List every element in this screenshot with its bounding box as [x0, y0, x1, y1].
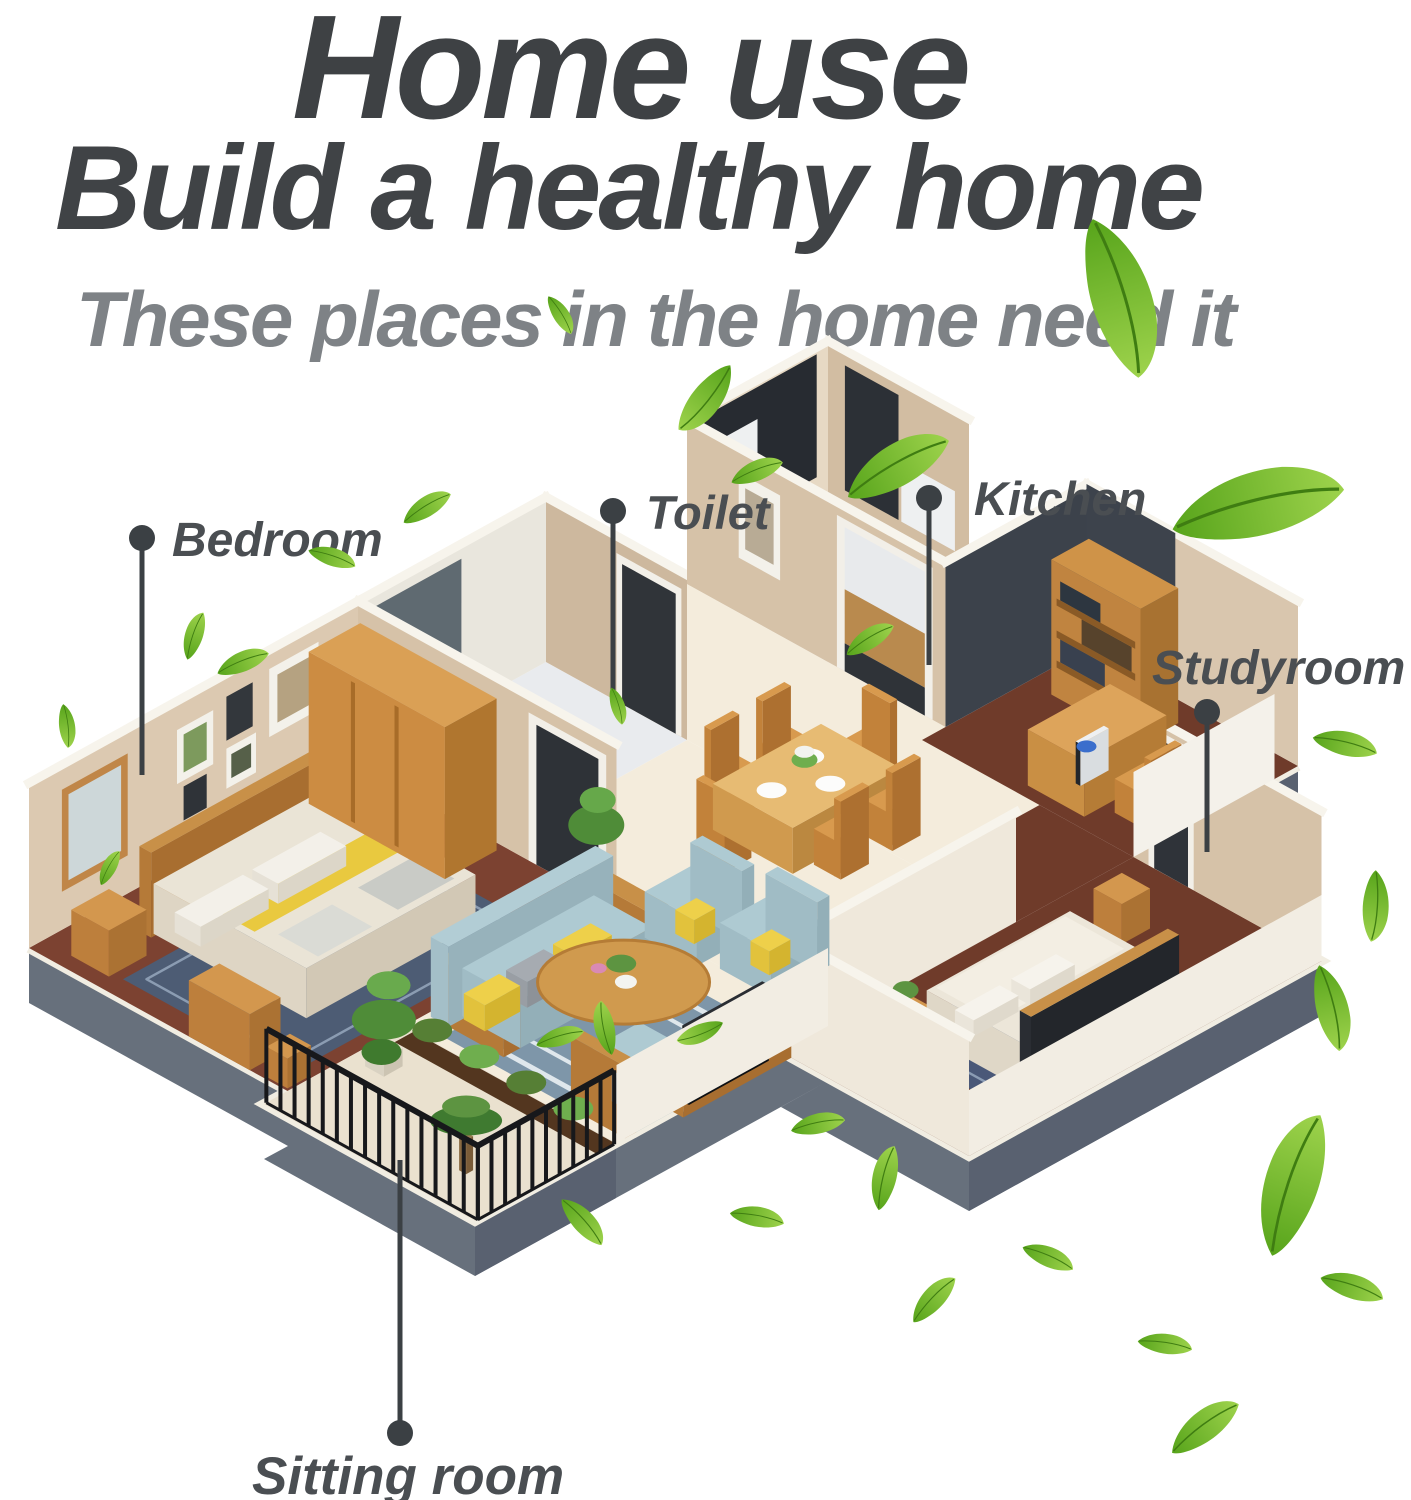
label-sitting-room: Sitting room	[252, 1447, 564, 1500]
desk-accessory	[1077, 740, 1097, 752]
callout-dot-sitting-room	[387, 1420, 413, 1446]
wardrobe-door-line	[395, 705, 399, 847]
palm-plant	[442, 1096, 490, 1118]
plate	[757, 782, 787, 798]
leaf-icon	[1310, 723, 1380, 763]
wardrobe	[445, 699, 497, 880]
callout-dot-kitchen	[916, 485, 942, 511]
label-studyroom: Studyroom	[1152, 642, 1405, 695]
dining-chair-back	[841, 786, 869, 880]
leaf-icon	[1317, 1264, 1387, 1309]
dining-chair-back	[834, 798, 841, 880]
label-toilet: Toilet	[646, 486, 772, 539]
balcony-plant	[367, 971, 411, 999]
leaf-icon	[1360, 869, 1392, 942]
table-decor	[615, 975, 637, 989]
toilet-door	[622, 564, 676, 734]
dining-chair-back	[886, 769, 893, 851]
floor-plan-illustration: BedroomToiletKitchenStudyroomSitting roo…	[0, 0, 1411, 1500]
wardrobe-door-line	[351, 681, 355, 823]
label-kitchen: Kitchen	[974, 472, 1146, 525]
leaf-icon	[904, 1270, 962, 1328]
callout-dot-studyroom	[1194, 699, 1220, 725]
leaf-icon	[1019, 1236, 1077, 1277]
dining-chair-back	[892, 757, 920, 851]
plant	[606, 955, 636, 973]
balcony-plant	[352, 1000, 416, 1040]
leaf-icon	[397, 484, 455, 529]
planter-bush	[459, 1045, 499, 1069]
leaf-icon	[1241, 1105, 1343, 1263]
leaf-icon	[1071, 209, 1172, 384]
plant	[580, 787, 616, 813]
planter-bush	[506, 1071, 546, 1095]
infographic-page: Home use Build a healthy home These plac…	[0, 0, 1411, 1500]
leaf-icon	[543, 291, 579, 337]
leaf-icon	[1161, 1390, 1246, 1462]
plate	[815, 776, 845, 792]
leaf-icon	[1136, 1329, 1194, 1358]
callout-dot-bedroom	[129, 525, 155, 551]
balcony-plant	[362, 1039, 402, 1065]
leaf-icon	[177, 609, 211, 662]
leaf-icon	[728, 1201, 786, 1232]
flower-vase	[795, 746, 815, 758]
planter-bush	[412, 1019, 452, 1043]
leaf-icon	[57, 703, 77, 748]
table-decor	[591, 963, 607, 973]
sofa-back	[431, 937, 449, 1027]
callout-dot-toilet	[600, 498, 626, 524]
